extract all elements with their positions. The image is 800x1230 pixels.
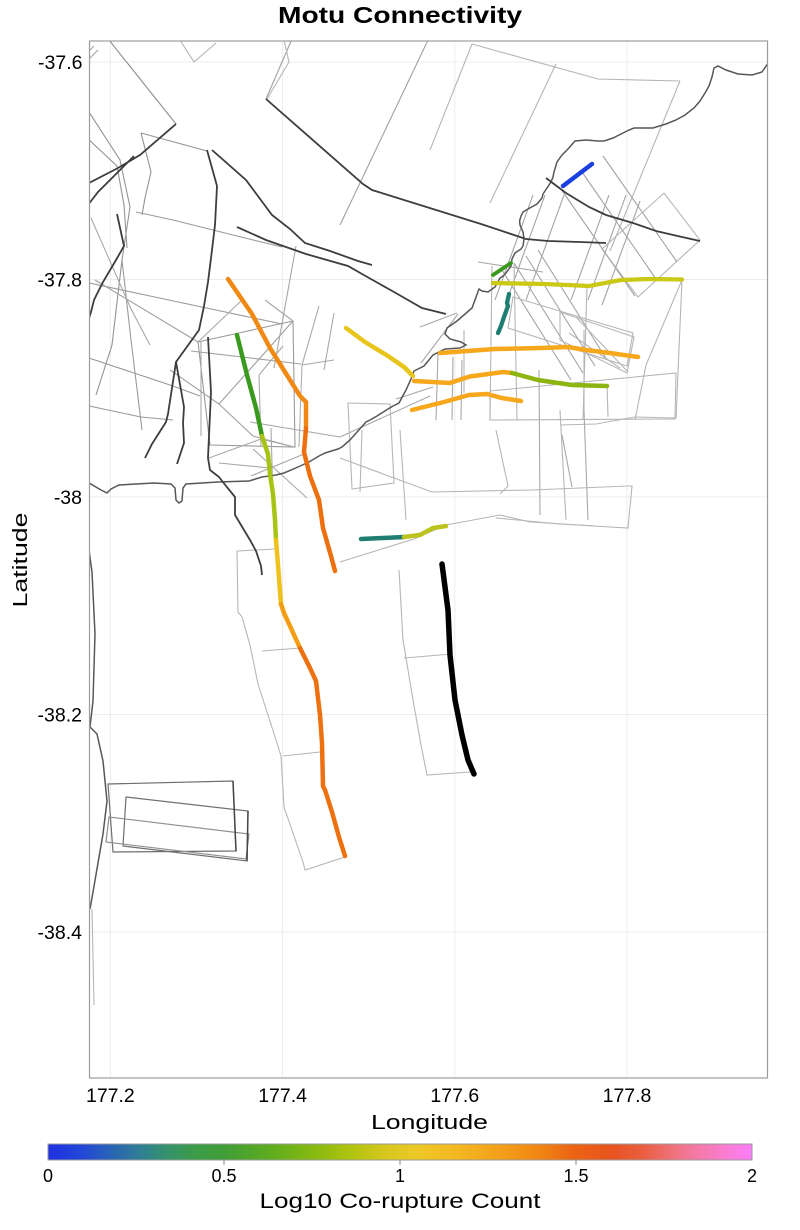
svg-text:177.4: 177.4 [258,1085,307,1107]
svg-text:177.6: 177.6 [430,1085,479,1107]
svg-text:Motu Connectivity: Motu Connectivity [278,2,522,28]
svg-text:-37.8: -37.8 [38,270,82,292]
svg-text:-38.4: -38.4 [38,922,83,944]
svg-text:Longitude: Longitude [371,1112,488,1134]
svg-text:-38.2: -38.2 [38,705,82,727]
svg-text:1.5: 1.5 [563,1166,588,1186]
svg-text:-37.6: -37.6 [38,52,82,74]
svg-text:177.2: 177.2 [86,1085,135,1107]
svg-text:0.5: 0.5 [211,1166,236,1186]
svg-text:Latitude: Latitude [10,513,32,608]
svg-text:177.8: 177.8 [603,1085,652,1107]
svg-text:-38: -38 [54,487,82,509]
svg-text:Log10 Co-rupture Count: Log10 Co-rupture Count [260,1190,541,1213]
svg-text:1: 1 [395,1166,405,1186]
svg-text:0: 0 [43,1166,53,1186]
svg-text:2: 2 [747,1166,757,1186]
